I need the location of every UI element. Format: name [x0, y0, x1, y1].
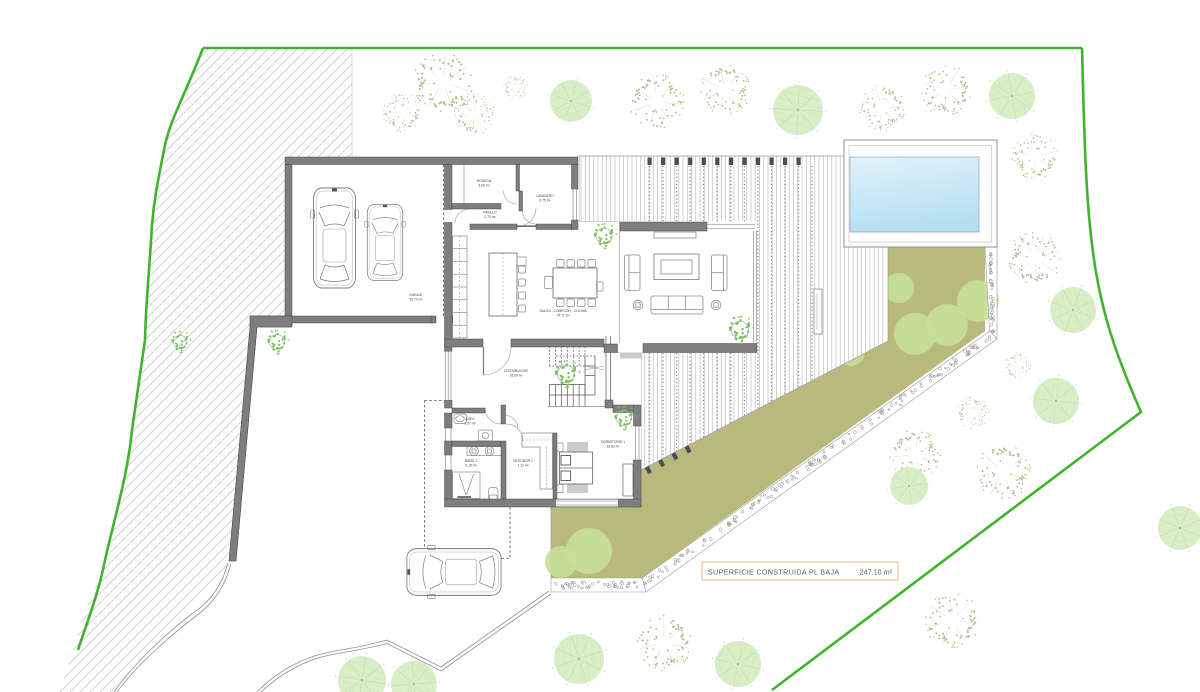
svg-text:73.71 m²: 73.71 m²: [556, 314, 570, 318]
svg-text:52.73 m²: 52.73 m²: [409, 298, 423, 302]
svg-text:3.57 m²: 3.57 m²: [464, 422, 476, 426]
svg-text:2.75 m²: 2.75 m²: [484, 215, 496, 219]
svg-text:18.82 m²: 18.82 m²: [606, 445, 620, 449]
svg-text:LAVADERO: LAVADERO: [536, 194, 554, 198]
svg-text:GARAJE: GARAJE: [409, 293, 423, 297]
svg-text:ASEO: ASEO: [465, 417, 475, 421]
svg-text:6.15 m²: 6.15 m²: [465, 464, 477, 468]
svg-text:PASILLO: PASILLO: [483, 211, 497, 215]
svg-text:5.60 m²: 5.60 m²: [478, 184, 490, 188]
svg-text:DORMITORIO 1: DORMITORIO 1: [601, 440, 625, 444]
svg-text:6.75 m²: 6.75 m²: [539, 199, 551, 203]
svg-text:DISTRIBUIDOR: DISTRIBUIDOR: [504, 369, 528, 373]
svg-text:7.12 m²: 7.12 m²: [517, 464, 529, 468]
svg-text:247.10 m²: 247.10 m²: [860, 568, 893, 577]
svg-text:SUPERFICIE CONSTRUIDA PL BAJA: SUPERFICIE CONSTRUIDA PL BAJA: [708, 568, 839, 577]
svg-text:16.09 m²: 16.09 m²: [509, 374, 523, 378]
svg-text:SALÓN - COMEDOR - COCINA: SALÓN - COMEDOR - COCINA: [539, 308, 587, 313]
svg-text:BAÑO 1: BAÑO 1: [465, 458, 477, 463]
svg-text:VESTIDOR 1: VESTIDOR 1: [513, 459, 533, 463]
svg-text:BODEGA: BODEGA: [477, 179, 492, 183]
